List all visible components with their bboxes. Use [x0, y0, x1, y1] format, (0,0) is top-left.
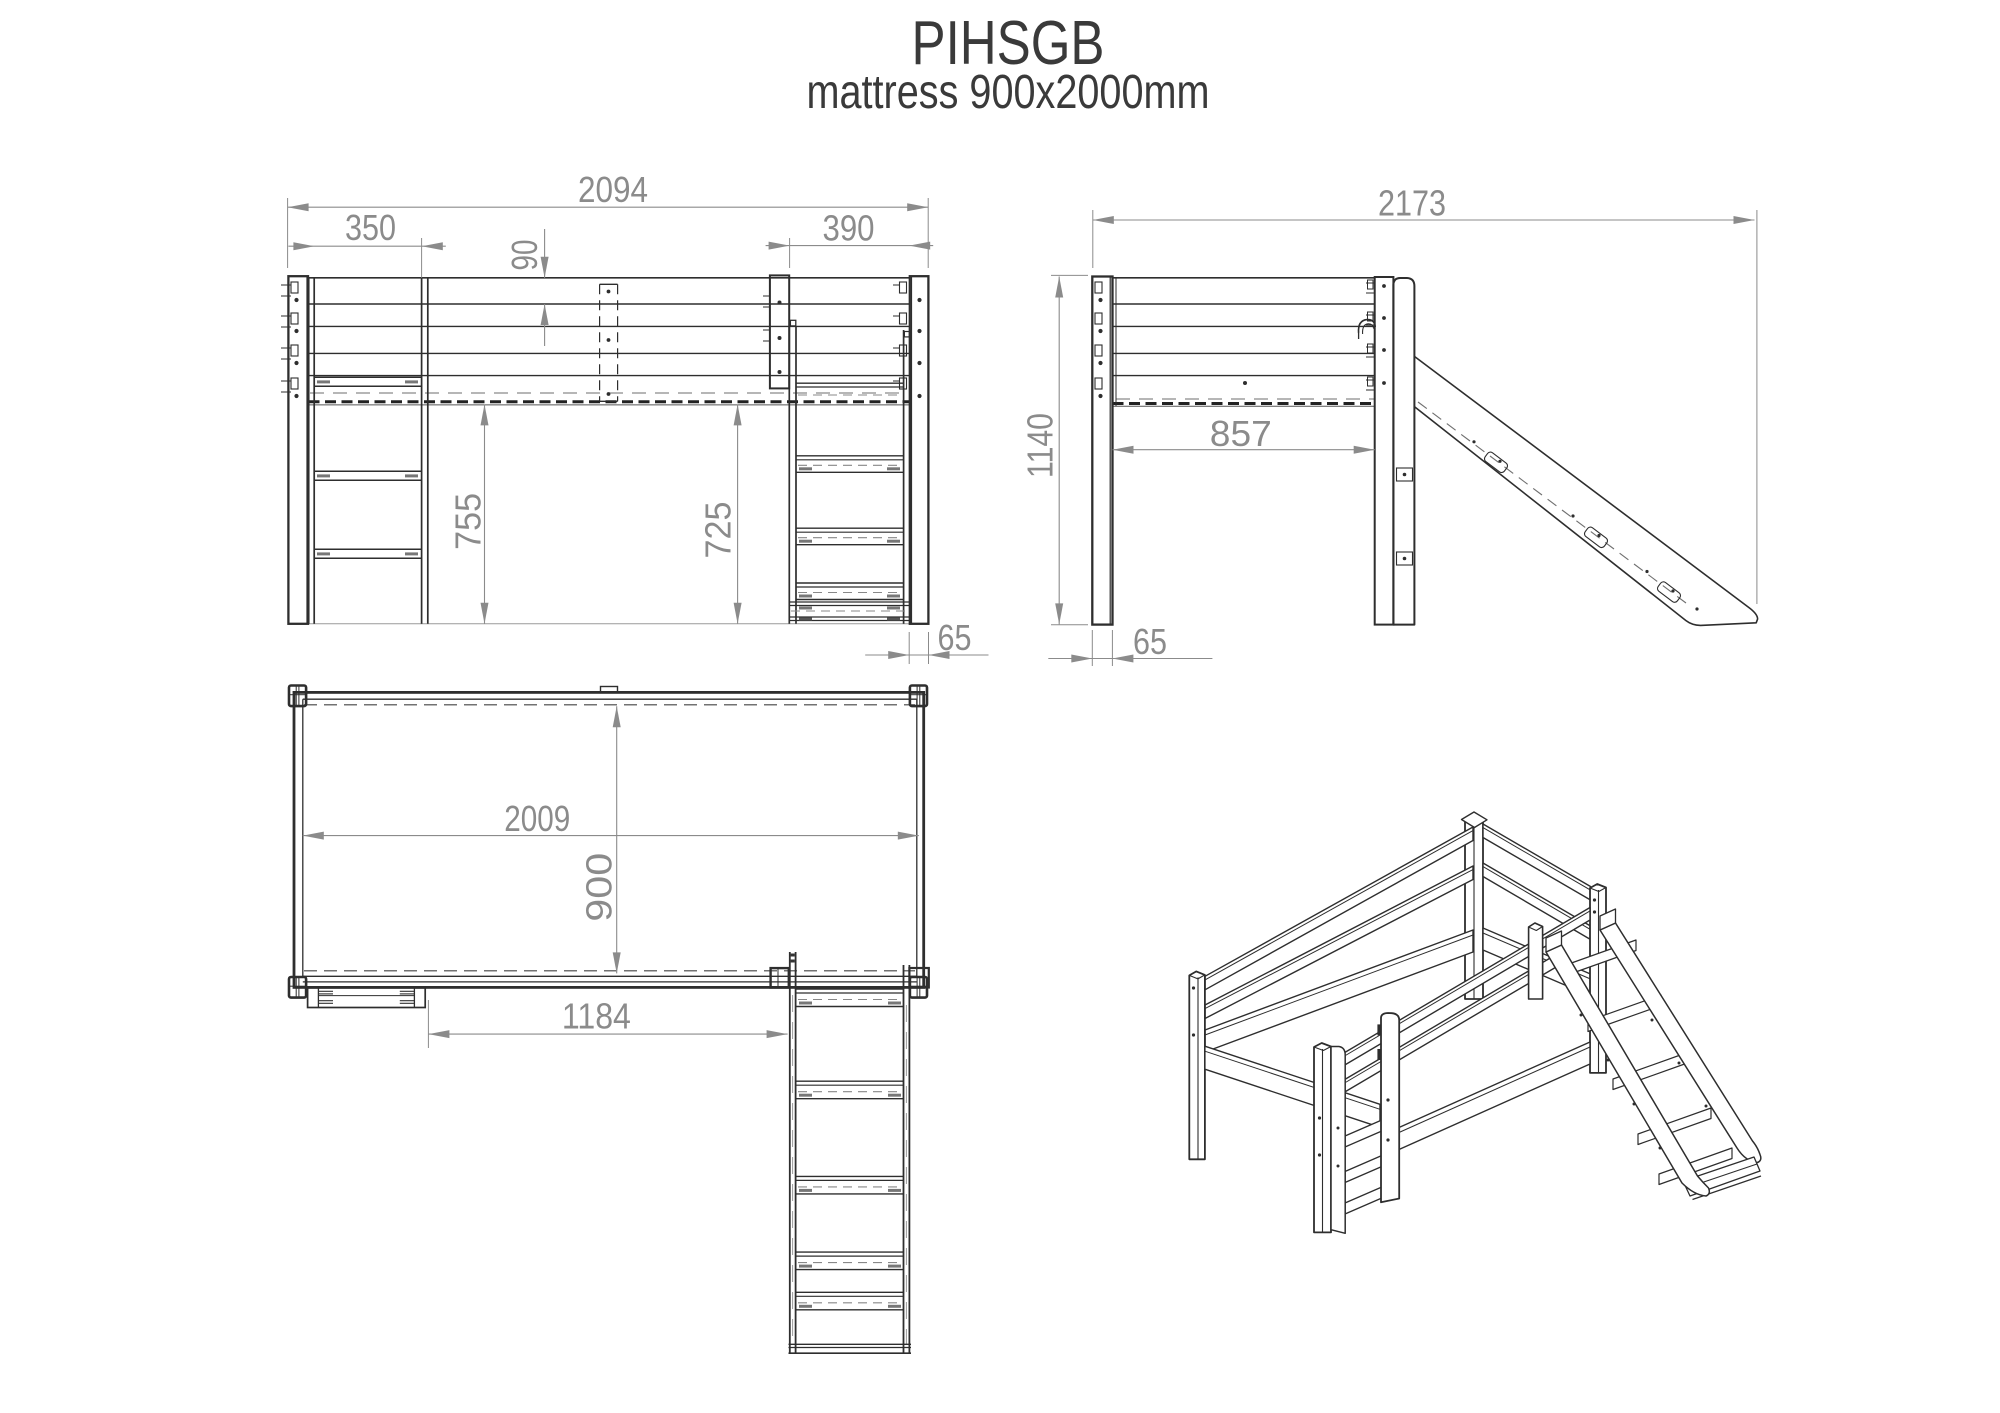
svg-text:65: 65	[1133, 621, 1167, 662]
svg-text:2094: 2094	[578, 169, 648, 210]
svg-text:65: 65	[938, 617, 972, 658]
svg-text:390: 390	[823, 208, 875, 249]
svg-text:900: 900	[579, 853, 620, 922]
svg-text:2009: 2009	[504, 798, 570, 839]
svg-text:mattress 900x2000mm: mattress 900x2000mm	[807, 66, 1210, 119]
svg-text:90: 90	[504, 240, 545, 271]
svg-text:755: 755	[448, 493, 489, 550]
svg-text:1184: 1184	[562, 996, 631, 1037]
svg-text:350: 350	[345, 207, 396, 248]
svg-text:725: 725	[698, 502, 739, 559]
svg-text:857: 857	[1210, 413, 1272, 454]
svg-text:1140: 1140	[1020, 413, 1061, 478]
svg-text:2173: 2173	[1378, 183, 1446, 224]
